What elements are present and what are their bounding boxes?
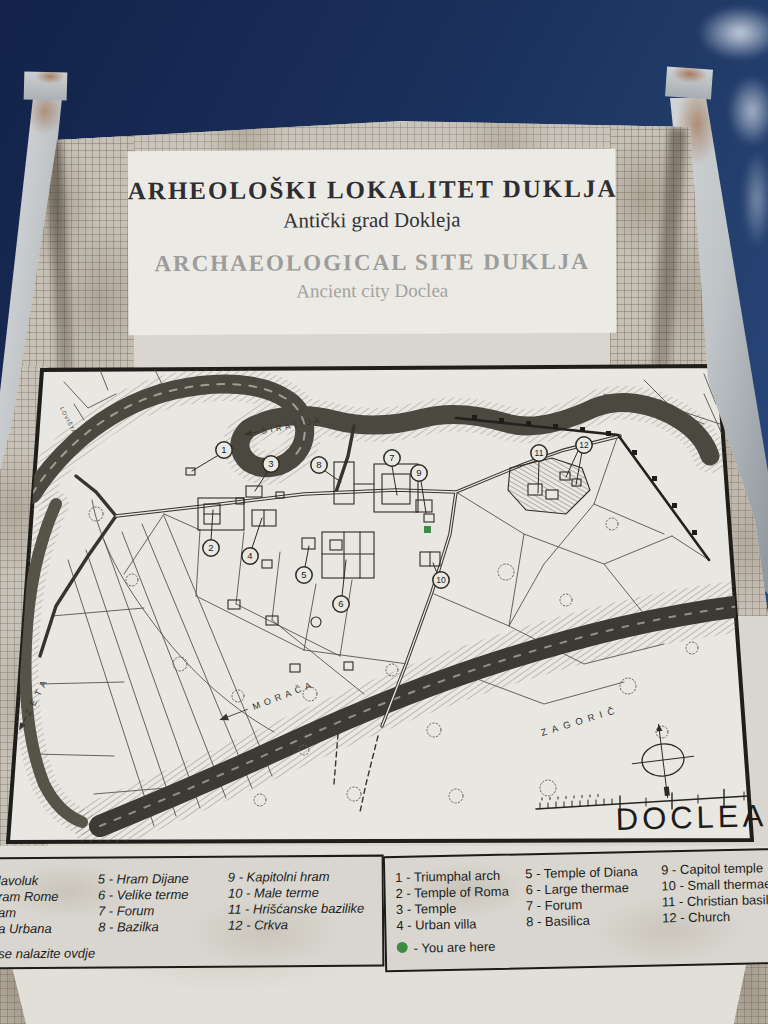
site-map: 1 2 3 4 5 6 7 8 9 10 11 12 <box>4 364 764 846</box>
legend-item: 6 - Large thermae <box>525 880 629 897</box>
svg-text:12: 12 <box>579 440 589 450</box>
sign-board: ARHEOLOŠKI LOKALITET DUKLJA Antički grad… <box>0 0 768 1024</box>
svg-text:4: 4 <box>247 550 252 561</box>
legend-item: 8 - Basilica <box>526 913 590 929</box>
legend-item: 12 - Crkva <box>228 917 288 932</box>
legend-item: 11 - Hrišćanske bazilike <box>228 901 364 917</box>
legend-item: 7 - Forum <box>98 903 154 918</box>
map-title: DOCLEA <box>615 798 764 837</box>
legend-item: 5 - Hram Dijane <box>98 871 189 887</box>
legend-item: am <box>0 905 16 920</box>
left-post-cap <box>24 71 68 100</box>
svg-text:6: 6 <box>338 598 343 609</box>
legend-item: 9 - Capitol temple <box>661 860 763 877</box>
legend-item: ram Rome <box>0 889 59 904</box>
you-are-here-dot <box>397 942 408 953</box>
legend-item: 8 - Bazilka <box>98 919 159 934</box>
legend-box-local: lavoluk ram Rome am a Urbana 5 - Hram Di… <box>0 855 384 970</box>
cloud <box>728 76 768 146</box>
legend-you-are-here-local: se nalazite ovdje <box>0 946 95 962</box>
legend-item: 2 - Temple of Roma <box>395 884 508 901</box>
legend-you-are-here-en: - You are here <box>414 939 496 956</box>
legend-item: 7 - Forum <box>526 897 583 913</box>
svg-text:5: 5 <box>301 569 306 580</box>
legend-item: 3 - Temple <box>396 901 457 917</box>
legend-item: 5 - Temple of Diana <box>525 864 638 881</box>
svg-text:10: 10 <box>436 575 446 585</box>
svg-text:1: 1 <box>221 444 226 455</box>
sign-title-local: ARHEOLOŠKI LOKALITET DUKLJA <box>128 175 616 206</box>
cloud <box>742 150 768 248</box>
svg-text:7: 7 <box>389 452 394 463</box>
legend-item: 1 - Triumphal arch <box>395 868 500 885</box>
legend-item: 9 - Kapitolni hram <box>228 869 330 885</box>
svg-text:11: 11 <box>535 448 544 458</box>
legend-item: 10 - Small thermae <box>661 876 768 893</box>
site-map-drawing: 1 2 3 4 5 6 7 8 9 10 11 12 <box>4 364 764 846</box>
svg-text:2: 2 <box>208 542 213 553</box>
title-panel: ARHEOLOŠKI LOKALITET DUKLJA Antički grad… <box>128 149 617 336</box>
svg-text:8: 8 <box>316 459 321 470</box>
you-are-here-marker <box>424 526 431 533</box>
legend-item: 10 - Male terme <box>228 885 319 901</box>
sign-subtitle-local: Antički grad Dokleja <box>128 207 616 235</box>
legend-item: 12 - Church <box>662 909 730 925</box>
sign-subtitle-en: Ancient city Doclea <box>128 279 616 304</box>
legend-item: 11 - Christian basilic <box>662 892 768 909</box>
legend-item: 4 - Urban villa <box>396 916 476 933</box>
svg-text:3: 3 <box>268 458 273 469</box>
sign-title-en: ARCHAEOLOGICAL SITE DUKLJA <box>128 249 616 278</box>
legend-item: lavoluk <box>0 873 38 888</box>
right-post-cap <box>665 66 713 99</box>
svg-text:9: 9 <box>416 467 421 478</box>
legend-box-english: 1 - Triumphal arch 2 - Temple of Roma 3 … <box>383 848 768 972</box>
legend-item: a Urbana <box>0 921 52 936</box>
legend-item: 6 - Velike terme <box>98 887 189 903</box>
photo-of-information-board: ARHEOLOŠKI LOKALITET DUKLJA Antički grad… <box>0 0 768 1024</box>
